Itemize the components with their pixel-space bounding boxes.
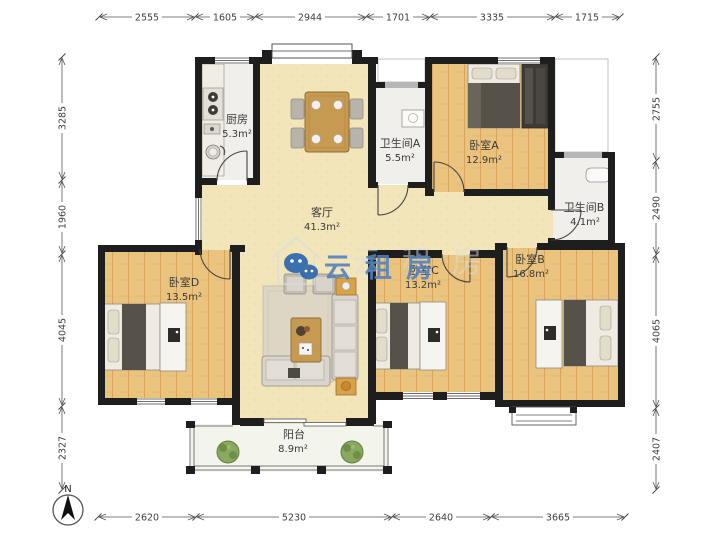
room-label-bathroom-b: 卫生间B [564, 200, 605, 214]
room-area-bedroom-a: 12.9m² [466, 155, 502, 166]
plant-icon [217, 441, 239, 463]
bathroom-a-fixtures [402, 110, 424, 127]
bedroom-c-furniture [372, 302, 446, 370]
plate-icon [334, 101, 343, 110]
kitchen-furniture [202, 64, 225, 176]
bathroom-b-fixtures [586, 168, 610, 182]
dining-chair [291, 99, 304, 119]
dining-chair [350, 99, 363, 119]
bay-window [512, 407, 576, 425]
dim-bottom-2: 2640 [429, 513, 453, 524]
pillow [496, 68, 516, 79]
pillow [108, 310, 119, 334]
room-area-bathroom-a: 5.5m² [385, 153, 415, 164]
plate-icon [334, 135, 343, 144]
living-furniture [262, 274, 358, 395]
room-label-bedroom-d: 卧室D [169, 275, 199, 289]
room-label-living: 客厅 [311, 205, 333, 219]
plate-icon [312, 135, 321, 144]
dim-bottom-0: 2620 [135, 513, 159, 524]
coffee-table [291, 318, 321, 362]
dining-table [305, 92, 349, 152]
pillow [376, 337, 387, 361]
watermark-text: 云租房 [324, 253, 447, 284]
dim-bottom-1: 5230 [282, 513, 306, 524]
room-area-bedroom-d: 13.5m² [166, 292, 202, 303]
recess-above-bathroom-b [555, 59, 608, 152]
plant-icon [341, 441, 363, 463]
dim-top-0: 2555 [135, 13, 159, 24]
compass-label: N [64, 484, 71, 495]
dim-left-3: 2327 [58, 436, 69, 460]
washing-machine [402, 110, 424, 127]
dim-right-1: 2490 [652, 196, 663, 220]
room-label-balcony: 阳台 [283, 427, 305, 441]
compass: N [53, 484, 83, 525]
dim-top-3: 1701 [386, 13, 410, 24]
dining-chair [291, 128, 304, 148]
room-label-bedroom-a: 卧室A [469, 138, 499, 152]
dim-bottom-3: 3665 [546, 513, 570, 524]
room-label-kitchen: 厨房 [226, 113, 248, 126]
bedroom-a-furniture [468, 64, 548, 128]
dim-left-1: 1960 [58, 205, 69, 229]
room-area-balcony: 8.9m² [278, 444, 308, 455]
bathroom-a-floor [376, 86, 426, 184]
dim-left-2: 4045 [58, 318, 69, 342]
pillow [472, 68, 492, 79]
plate-icon [312, 101, 321, 110]
dim-right-3: 2407 [652, 437, 663, 461]
room-label-bedroom-b: 卧室B [515, 252, 545, 266]
dim-right-2: 4065 [652, 319, 663, 343]
pillow [600, 336, 611, 360]
pillow [108, 338, 119, 362]
dining-chair [350, 128, 363, 148]
pillow [376, 309, 387, 333]
pillow [600, 306, 611, 330]
dim-left-0: 3285 [58, 106, 69, 130]
dim-right-0: 2755 [652, 97, 663, 121]
bedroom-b-furniture [536, 300, 618, 368]
room-area-living: 41.3m² [304, 222, 340, 233]
room-area-bedroom-b: 16.8m² [513, 269, 549, 280]
duvet [564, 300, 586, 366]
room-label-bathroom-a: 卫生间A [380, 136, 421, 150]
dim-top-2: 2944 [298, 13, 322, 24]
hall-to-bath-b-floor [500, 195, 553, 250]
dim-top-1: 1605 [213, 13, 237, 24]
bedroom-d-furniture [104, 303, 186, 371]
floor-plan-svg: 厨房 5.3m² 卫生间A 5.5m² 卧室A 12.9m² 卫生间B 4.1m… [0, 0, 720, 540]
floor-plan: 厨房 5.3m² 卫生间A 5.5m² 卧室A 12.9m² 卫生间B 4.1m… [0, 0, 720, 540]
washbasin [586, 168, 610, 182]
dim-top-5: 1715 [575, 13, 599, 24]
room-area-bathroom-b: 4.1m² [570, 217, 600, 228]
room-area-kitchen: 5.3m² [222, 129, 252, 140]
dim-top-4: 3335 [480, 13, 504, 24]
duvet [390, 303, 408, 369]
recess-above-bathroom-a [378, 59, 425, 82]
duvet [122, 304, 146, 370]
